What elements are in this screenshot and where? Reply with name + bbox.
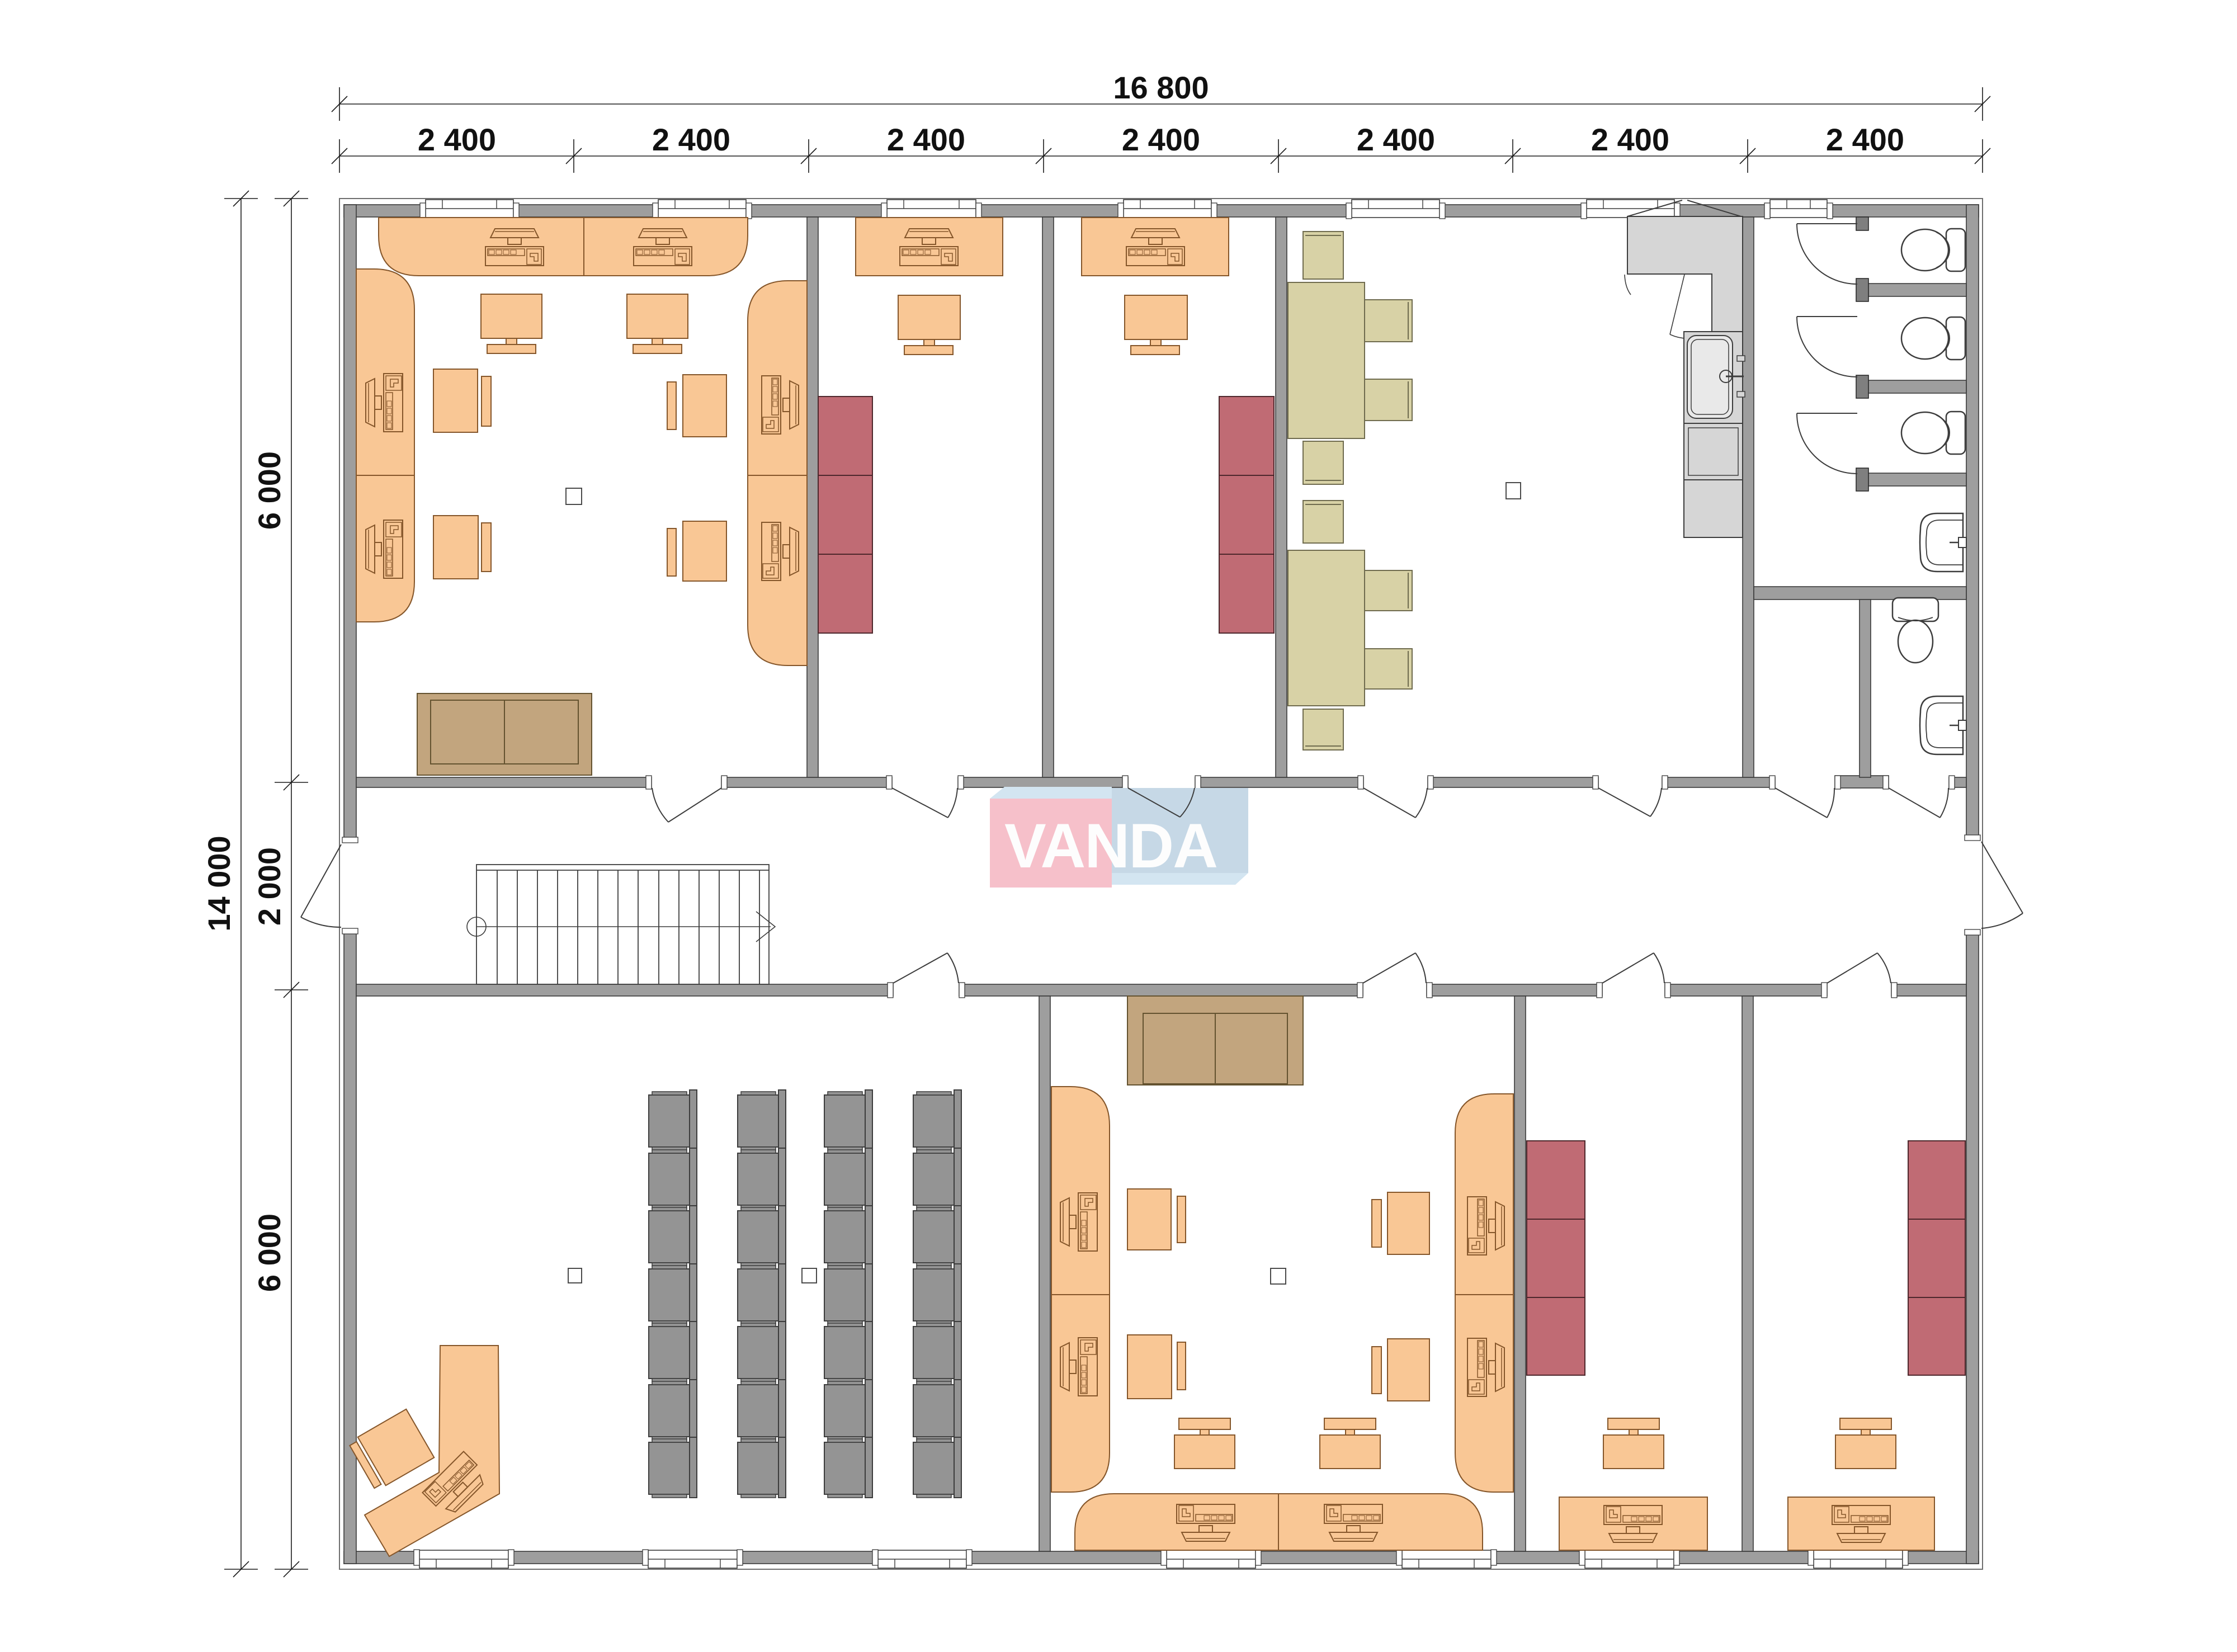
svg-text:2 400: 2 400	[887, 122, 965, 157]
svg-text:6 000: 6 000	[252, 451, 287, 530]
svg-text:2 400: 2 400	[1122, 122, 1200, 157]
svg-text:2 400: 2 400	[1826, 122, 1904, 157]
svg-text:2 400: 2 400	[1591, 122, 1669, 157]
svg-text:2 000: 2 000	[252, 847, 287, 926]
svg-text:2 400: 2 400	[652, 122, 730, 157]
svg-text:VANDA: VANDA	[1004, 811, 1217, 881]
svg-text:6 000: 6 000	[252, 1214, 287, 1292]
svg-text:2 400: 2 400	[1357, 122, 1435, 157]
svg-text:2 400: 2 400	[418, 122, 496, 157]
svg-text:14 000: 14 000	[201, 836, 237, 931]
svg-text:16 800: 16 800	[1113, 70, 1209, 105]
